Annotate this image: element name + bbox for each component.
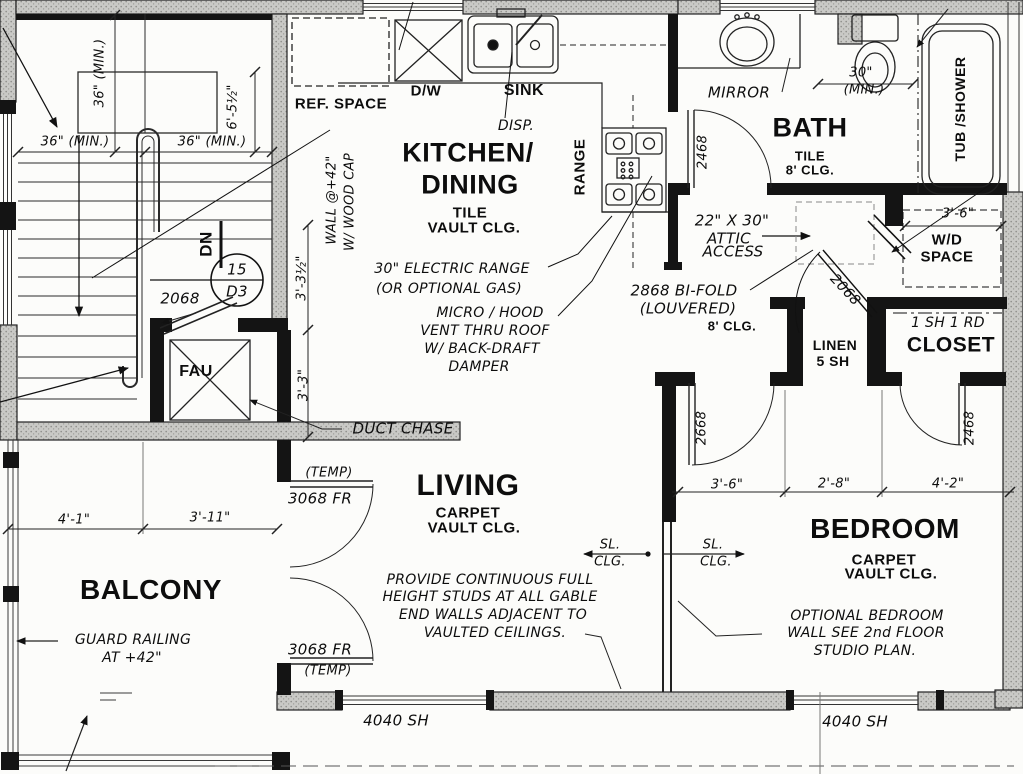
optional-note-2: WALL SEE 2nd FLOOR: [787, 626, 945, 640]
mirror-note: MIRROR: [708, 86, 770, 101]
attic-access-hatch: [796, 202, 874, 264]
door-label-2668: 2668: [696, 411, 709, 445]
dim-wd: 3'-6": [942, 208, 974, 221]
range-icon: [602, 128, 668, 212]
optional-wall: [663, 522, 671, 692]
toilet-dim-2: (MIN.): [844, 84, 885, 97]
door-temp-bottom: (TEMP): [304, 665, 351, 678]
living-ceiling: VAULT CLG.: [428, 521, 521, 536]
micro-note-4: DAMPER: [448, 360, 509, 374]
kitchen-ceiling: VAULT CLG.: [428, 221, 521, 236]
kitchen-title-2: DINING: [421, 172, 519, 199]
door-label-3068-bottom: 3068 FR: [288, 643, 352, 658]
window-label-right: 4040 SH: [822, 715, 888, 730]
wd-label-1: W/D: [932, 233, 963, 248]
optional-note-3: STUDIO PLAN.: [814, 644, 916, 658]
dim-fau-b: 3'-3": [298, 369, 311, 401]
range-note-1: 30" ELECTRIC RANGE: [374, 262, 529, 276]
bifold-note-2: (LOUVERED): [640, 302, 737, 317]
bedroom-ceiling: VAULT CLG.: [845, 567, 938, 582]
bifold-note-1: 2868 BI-FOLD: [630, 284, 737, 299]
micro-note-2: VENT THRU ROOF: [420, 324, 549, 338]
wall-note-line2: W/ WOOD CAP: [344, 153, 357, 251]
dim-balcony-2: 3'-11": [190, 512, 231, 525]
door-temp-top: (TEMP): [305, 467, 352, 480]
studs-note-1: PROVIDE CONTINUOUS FULL: [386, 573, 593, 587]
sloped-clg-left-2: CLG.: [594, 556, 626, 569]
balcony-title: BALCONY: [80, 576, 222, 604]
tub-shower-label: TUB /SHOWER: [953, 56, 967, 161]
range-note-2: (OR OPTIONAL GAS): [376, 282, 522, 296]
disposal-note: DISP.: [498, 119, 534, 133]
balcony-railing: [1, 440, 290, 770]
door-label-2068-fau: 2068: [160, 292, 199, 307]
closet-shelf-note: 1 SH 1 RD: [911, 316, 985, 330]
studs-note-2: HEIGHT STUDS AT ALL GABLE: [382, 590, 597, 604]
dim-balcony-1: 4'-1": [58, 514, 90, 527]
door-label-2468-bath: 2468: [697, 135, 710, 169]
sloped-clg-right-2: CLG.: [700, 556, 732, 569]
staircase: [18, 14, 272, 399]
door-label-2468-closet: 2468: [964, 411, 977, 445]
ref-space-label: REF. SPACE: [295, 97, 387, 112]
bedroom-title: BEDROOM: [810, 515, 960, 543]
kitchen-floor: TILE: [453, 206, 488, 221]
detail-sheet: D3: [226, 285, 248, 300]
alcove-doors: [689, 383, 965, 465]
linen-title: LINEN: [813, 338, 858, 352]
floor-plan: 36" (MIN.) 36" (MIN.) 36" (MIN.) 6'-5½" …: [0, 0, 1023, 774]
living-title: LIVING: [416, 471, 519, 501]
hall-ceiling: 8' CLG.: [708, 320, 757, 333]
studs-note-4: VAULTED CEILINGS.: [424, 626, 566, 640]
bath-title: BATH: [773, 115, 848, 142]
kitchen-title-1: KITCHEN/: [402, 140, 534, 167]
sink-label: SINK: [504, 83, 544, 99]
bath-floor: TILE: [795, 150, 825, 163]
micro-note-3: W/ BACK-DRAFT: [424, 342, 539, 356]
dim-alcove-2: 2'-8": [818, 478, 850, 491]
attic-note-1: 22" X 30": [695, 214, 770, 229]
fau-label: FAU: [179, 364, 213, 380]
living-floor: CARPET: [436, 506, 501, 521]
dim-alcove-1: 3'-6": [711, 479, 743, 492]
guard-railing-note-2: AT +42": [102, 651, 162, 665]
wall-note-line1: WALL @+42": [326, 155, 339, 244]
duct-chase-note: DUCT CHASE: [353, 422, 454, 437]
micro-note-1: MICRO / HOOD: [436, 306, 543, 320]
attic-note-3: ACCESS: [703, 245, 764, 260]
guard-railing-note-1: GUARD RAILING: [75, 633, 191, 647]
closet-title: CLOSET: [907, 335, 995, 356]
window-label-left: 4040 SH: [363, 714, 429, 729]
kitchen-sink-icon: [468, 9, 558, 73]
sloped-clg-right-1: SL.: [703, 539, 724, 552]
toilet-dim-1: 30": [849, 67, 872, 80]
stairs-down-label: DN: [198, 231, 215, 257]
range-label: RANGE: [573, 139, 588, 196]
door-label-3068-top: 3068 FR: [288, 492, 352, 507]
refrigerator-space-outline: [292, 18, 389, 86]
optional-note-1: OPTIONAL BEDROOM: [790, 609, 943, 623]
fau-unit: [160, 297, 250, 420]
dishwasher-label: D/W: [411, 84, 442, 99]
dim-stair-left: 36" (MIN.): [41, 136, 110, 149]
sloped-clg-left-1: SL.: [600, 539, 621, 552]
dim-fau-a: 3'-3½": [296, 255, 309, 300]
detail-number: 15: [227, 263, 247, 278]
wd-label-2: SPACE: [920, 250, 973, 265]
dim-alcove-3: 4'-2": [932, 478, 964, 491]
bath-sink-icon: [720, 13, 774, 66]
bath-ceiling: 8' CLG.: [786, 164, 835, 177]
dim-stair-right: 36" (MIN.): [178, 136, 247, 149]
dim-stair-vert: 36" (MIN.): [94, 39, 107, 108]
dim-stair-vert2: 6'-5½": [227, 84, 240, 129]
studs-note-3: END WALLS ADJACENT TO: [399, 608, 587, 622]
linen-shelves: 5 SH: [816, 354, 849, 368]
